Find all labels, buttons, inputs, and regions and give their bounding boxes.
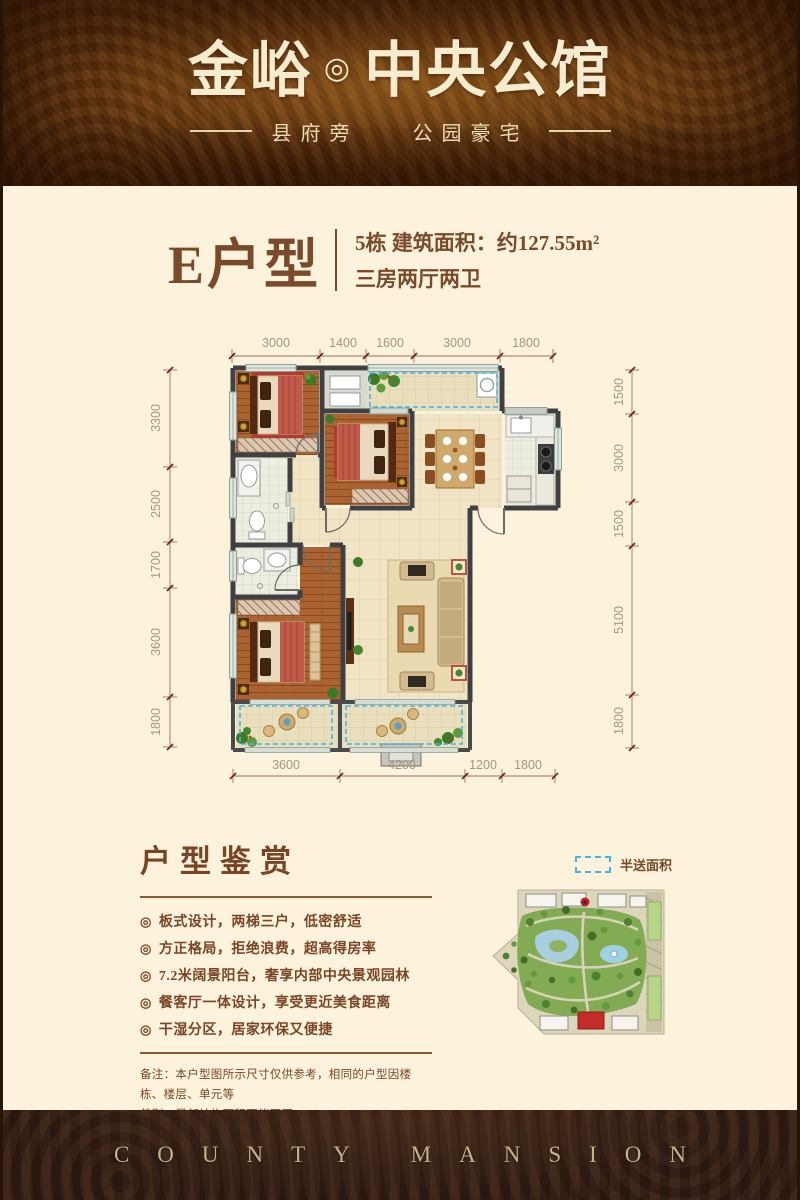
dim-label: 5100 xyxy=(612,606,626,634)
dim-label: 3600 xyxy=(272,758,300,772)
dim-label: 1800 xyxy=(150,708,163,736)
dim-label: 1800 xyxy=(514,758,542,772)
plant xyxy=(328,688,339,699)
feature-text: 干湿分区，居家环保又便捷 xyxy=(159,1019,333,1039)
window xyxy=(370,408,408,414)
dim-label: 3300 xyxy=(150,404,163,432)
plant xyxy=(353,645,363,655)
unit-area-line: 5栋 建筑面积：约127.55m² xyxy=(355,227,599,257)
left-edge-border xyxy=(0,0,3,1200)
dim-label: 1400 xyxy=(329,336,357,350)
feature-item: ◎方正格局，拒绝浪费，超高得房率 xyxy=(140,938,432,958)
toilet-tank xyxy=(249,532,265,539)
lake-island xyxy=(549,940,567,952)
lamp xyxy=(240,375,247,382)
feature-text: 方正格局，拒绝浪费，超高得房率 xyxy=(159,938,377,958)
plant xyxy=(326,415,335,424)
unit-info: 5栋 建筑面积：约127.55m² 三房两厅两卫 xyxy=(355,227,599,293)
wardrobe xyxy=(352,489,408,503)
lamp xyxy=(240,423,247,430)
sink xyxy=(241,465,257,487)
tagline-rule-right xyxy=(549,130,611,132)
pillow xyxy=(374,430,385,448)
note-line1: 备注：本户型图所示尺寸仅供参考，相同的户型因楼栋、楼层、单元等 xyxy=(140,1065,432,1105)
blanket xyxy=(280,622,304,682)
sink xyxy=(511,418,531,433)
balcony-door-glass xyxy=(250,700,330,705)
sliding-door xyxy=(290,508,294,522)
toilet xyxy=(243,559,261,574)
feature-item: ◎干湿分区，居家环保又便捷 xyxy=(140,1019,432,1039)
fountain xyxy=(611,951,617,957)
pillow xyxy=(260,410,271,428)
armchair-cushion xyxy=(408,565,426,576)
wardrobe xyxy=(238,438,318,452)
blanket xyxy=(278,376,302,434)
dim-label: 1700 xyxy=(150,551,163,579)
section-divider-bottom xyxy=(140,1052,432,1054)
headboard xyxy=(250,622,258,682)
lamp xyxy=(240,686,247,693)
plant xyxy=(377,384,386,393)
toilet xyxy=(250,511,265,531)
armchair-cushion xyxy=(408,676,426,687)
footer-banner: COUNTY MANSION xyxy=(0,1110,800,1200)
dim-label: 1200 xyxy=(469,758,497,772)
stool xyxy=(264,726,275,737)
sofa-cushion xyxy=(440,610,462,636)
feature-text: 板式设计，两梯三户，低密舒适 xyxy=(159,911,362,931)
legend-label: 半送面积 xyxy=(620,855,672,874)
dim-label: 3000 xyxy=(612,444,626,472)
bullet-icon: ◎ xyxy=(140,1022,152,1038)
bullet-icon: ◎ xyxy=(140,995,152,1011)
dim-label: 1500 xyxy=(612,378,626,406)
unit-rooms-line: 三房两厅两卫 xyxy=(355,263,599,293)
lamp xyxy=(399,419,405,425)
dim-label: 1800 xyxy=(612,707,626,735)
brand-name-right: 中央公馆 xyxy=(364,41,612,101)
plant xyxy=(353,557,363,567)
lamp xyxy=(240,620,247,627)
gift-area-legend: 半送面积 xyxy=(575,855,672,874)
feature-list: ◎板式设计，两梯三户，低密舒适 ◎方正格局，拒绝浪费，超高得房率 ◎7.2米阔景… xyxy=(140,911,432,1039)
tagline: 县府旁 公园豪宅 xyxy=(190,117,611,146)
headboard xyxy=(388,422,396,482)
tagline-text-right: 公园豪宅 xyxy=(413,117,529,146)
dining-table xyxy=(436,430,474,488)
plant xyxy=(247,737,257,747)
closet-box xyxy=(330,376,360,389)
unit-title-block: E户型 5栋 建筑面积：约127.55m² 三房两厅两卫 xyxy=(168,220,599,299)
dim-label: 2500 xyxy=(150,490,163,518)
title-divider xyxy=(335,229,337,291)
pillow xyxy=(260,382,271,400)
highlighted-building xyxy=(578,1012,604,1029)
dim-label: 1600 xyxy=(376,336,404,350)
feature-text: 7.2米阔景阳台，奢享内部中央景观园林 xyxy=(159,965,410,985)
dim-label: 3000 xyxy=(262,336,290,350)
stool xyxy=(298,708,309,719)
section-title: 户型鉴赏 xyxy=(140,836,432,881)
tagline-rule-left xyxy=(190,130,252,132)
site-plan xyxy=(488,884,688,1044)
unit-title: E户型 xyxy=(168,220,321,299)
lamp xyxy=(399,479,405,485)
dim-label: 1500 xyxy=(612,510,626,538)
feature-item: ◎7.2米阔景阳台，奢享内部中央景观园林 xyxy=(140,965,432,985)
balcony-rail-glass xyxy=(245,748,330,753)
sink xyxy=(268,553,286,567)
headboard xyxy=(250,376,258,434)
tv xyxy=(348,612,352,650)
pillow xyxy=(260,658,271,676)
feature-item: ◎板式设计，两梯三户，低密舒适 xyxy=(140,911,432,931)
appreciation-section: 户型鉴赏 ◎板式设计，两梯三户，低密舒适 ◎方正格局，拒绝浪费，超高得房率 ◎7… xyxy=(140,836,432,1125)
dim-label: 1800 xyxy=(512,336,540,350)
green-strip xyxy=(648,976,661,1020)
pillow xyxy=(374,456,385,474)
stool xyxy=(377,726,388,737)
footer-wordmark: COUNTY MANSION xyxy=(114,1142,714,1168)
green-strip xyxy=(648,902,661,940)
sliding-door xyxy=(286,492,290,506)
poster-page: 金峪 ◎ 中央公馆 县府旁 公园豪宅 E户型 5栋 建筑面积：约127.55m²… xyxy=(0,0,800,1200)
dim-label: 3000 xyxy=(443,336,471,350)
feature-text: 餐客厅一体设计，享受更近美食距离 xyxy=(159,992,391,1012)
brand-name-left: 金峪 xyxy=(188,41,312,101)
balcony-rail-glass xyxy=(350,748,458,753)
floor-plan: 3000 1400 1600 3000 1800 3300 2500 1700 … xyxy=(150,325,650,805)
brand-logo: 金峪 ◎ 中央公馆 xyxy=(188,41,612,101)
sofa-cushion xyxy=(440,638,462,664)
dashed-area-swatch xyxy=(575,856,611,873)
bullet-icon: ◎ xyxy=(140,941,152,957)
closet-box xyxy=(330,393,360,406)
wardrobe xyxy=(238,600,300,615)
balcony-door-glass xyxy=(355,700,455,705)
feature-item: ◎餐客厅一体设计，享受更近美食距离 xyxy=(140,992,432,1012)
sofa-cushion xyxy=(440,582,462,608)
brand-mark-icon: ◎ xyxy=(324,54,352,84)
bullet-icon: ◎ xyxy=(140,914,152,930)
plant xyxy=(243,727,251,735)
header-banner: 金峪 ◎ 中央公馆 县府旁 公园豪宅 xyxy=(0,0,800,186)
pillow xyxy=(260,630,271,648)
stool xyxy=(408,709,419,720)
bullet-icon: ◎ xyxy=(140,968,152,984)
tagline-text-left: 县府旁 xyxy=(272,117,359,146)
dim-label: 3600 xyxy=(150,628,163,656)
section-divider-top xyxy=(140,896,432,898)
hall-floor xyxy=(290,455,322,508)
dim-label: 4200 xyxy=(388,758,416,772)
window xyxy=(505,408,547,415)
hall-floor2 xyxy=(290,508,345,545)
